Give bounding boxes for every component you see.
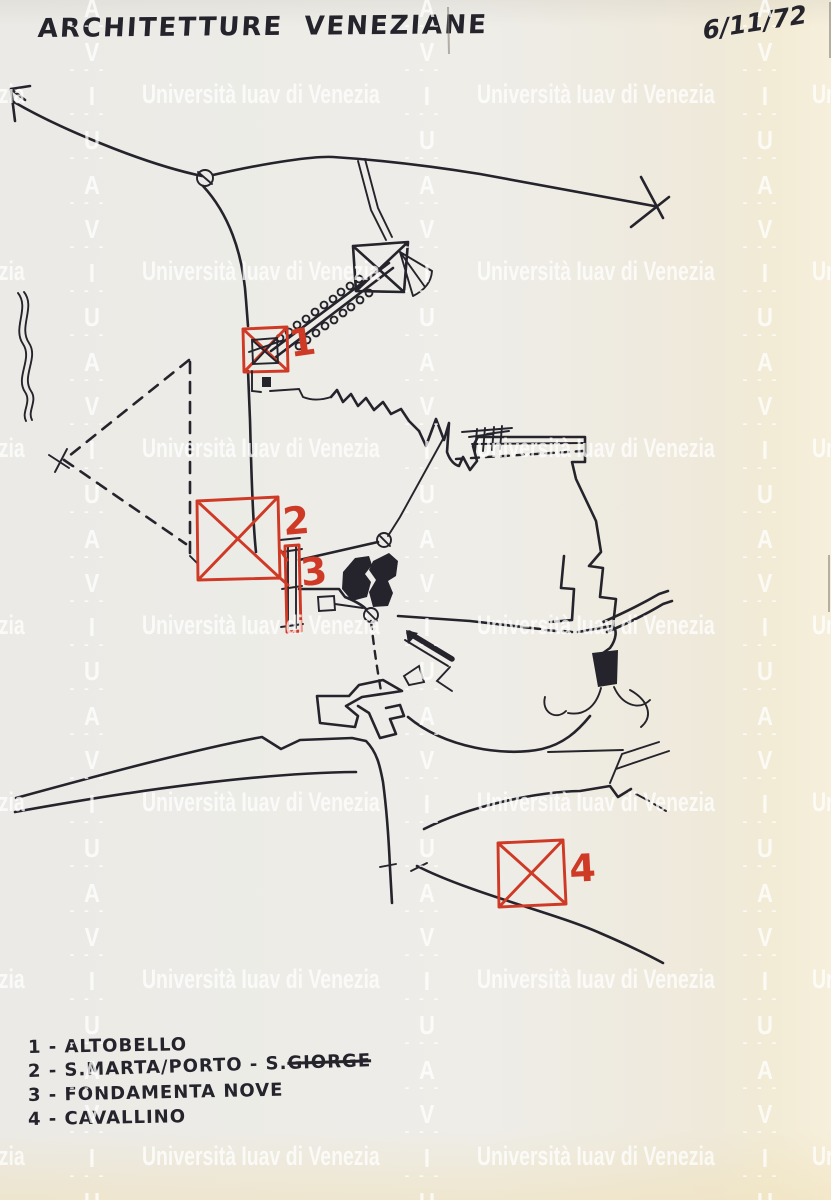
marker-number-3: 3 (298, 548, 329, 595)
north-arrow (11, 86, 30, 121)
marker-square-4: 4 (498, 840, 597, 907)
marker-number-2: 2 (281, 498, 311, 544)
sketch-map-svg: 1 (0, 0, 831, 1200)
lido-strip (15, 737, 396, 903)
shore-detail (252, 371, 419, 431)
island-blob (592, 650, 618, 687)
railway-line (358, 159, 392, 240)
island-cluster (317, 630, 590, 752)
legend: 1 - ALTOBELLO 2 - S.MARTA/PORTO - S.GIOR… (28, 1036, 371, 1132)
dashed-triangle (49, 360, 197, 563)
lagoon-outline (388, 419, 672, 632)
river-squiggle (18, 292, 33, 421)
mainland-road (14, 102, 669, 227)
cavallino-coast (411, 742, 669, 963)
building-block-west (342, 556, 372, 601)
scanned-sketch-page: ARCHITETTURE VENEZIANE 6/11/72 (0, 0, 831, 1200)
scan-artifacts (448, 2, 830, 612)
marker-number-4: 4 (568, 846, 597, 891)
fondamente-nove-hatches (462, 426, 512, 452)
legend-item-4: 4 - CAVALLINO (28, 1102, 372, 1132)
marker-number-1: 1 (286, 319, 318, 366)
building-block-east (369, 553, 398, 607)
